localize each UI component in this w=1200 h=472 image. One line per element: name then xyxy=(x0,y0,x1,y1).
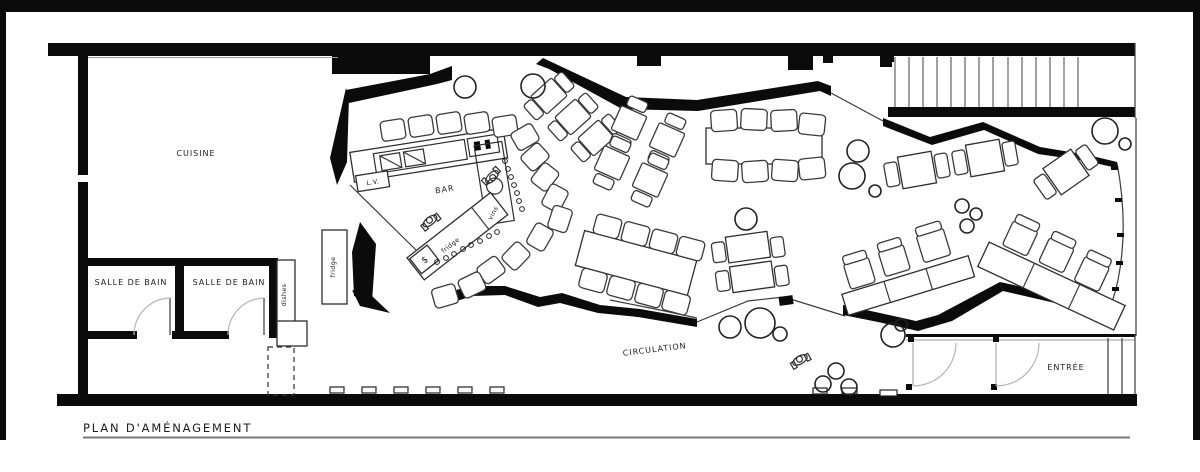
title-block: PLAN D'AMÉNAGEMENT xyxy=(83,420,1130,438)
kitchen-fridge-label: fridge xyxy=(329,257,337,278)
entrance-vestibule: ENTRÉE xyxy=(906,334,1135,394)
long-table-1 xyxy=(706,108,826,183)
floor-plan-drawing: SALLE DE BAIN SALLE DE BAIN CUISINE xyxy=(0,0,1200,472)
two-by-two-table-cluster xyxy=(589,94,691,210)
bathroom2-label: SALLE DE BAIN xyxy=(193,278,266,287)
bathrooms: SALLE DE BAIN SALLE DE BAIN xyxy=(80,258,278,339)
person-figure xyxy=(481,166,502,187)
kitchen-label: CUISINE xyxy=(177,149,216,158)
two-seat-table-2 xyxy=(951,137,1020,180)
long-table-2 xyxy=(570,211,706,315)
dishes-label: dishes xyxy=(280,283,288,306)
plan-title: PLAN D'AMÉNAGEMENT xyxy=(83,420,252,435)
bar-label: BAR xyxy=(435,184,456,196)
bathroom-door-2 xyxy=(228,298,264,335)
banquette-left xyxy=(830,216,975,316)
bathroom-door-1 xyxy=(134,298,170,335)
entrance-door-1 xyxy=(913,343,956,386)
entrance-label: ENTRÉE xyxy=(1047,361,1084,372)
stacked-table-pair xyxy=(710,229,789,294)
entrance-door-2 xyxy=(996,343,1039,386)
banquette-right xyxy=(978,208,1141,330)
two-seat-table-1 xyxy=(883,149,952,192)
circulation-label: CIRCULATION xyxy=(622,341,687,358)
bathroom1-label: SALLE DE BAIN xyxy=(95,278,168,287)
kitchen-fridge-unit: fridge xyxy=(322,230,347,304)
floor-plan-page: SALLE DE BAIN SALLE DE BAIN CUISINE xyxy=(0,0,1200,472)
person-figure xyxy=(789,352,811,370)
person-figure xyxy=(420,212,441,231)
bar-area: L.V. BAR fridge vins $ xyxy=(350,111,573,309)
